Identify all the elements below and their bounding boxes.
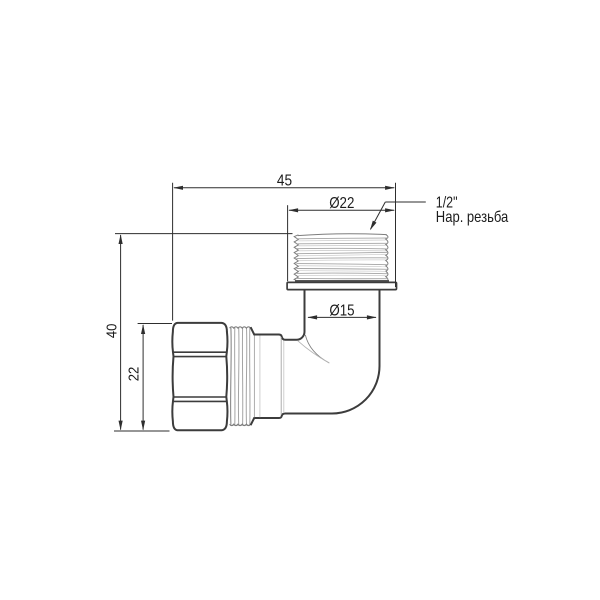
svg-text:Ø22: Ø22 [329,195,354,212]
svg-text:45: 45 [277,172,292,189]
svg-text:22: 22 [127,367,143,382]
svg-text:Ø15: Ø15 [329,302,354,319]
svg-text:40: 40 [104,324,120,339]
svg-text:Нар. резьба: Нар. резьба [436,209,509,226]
